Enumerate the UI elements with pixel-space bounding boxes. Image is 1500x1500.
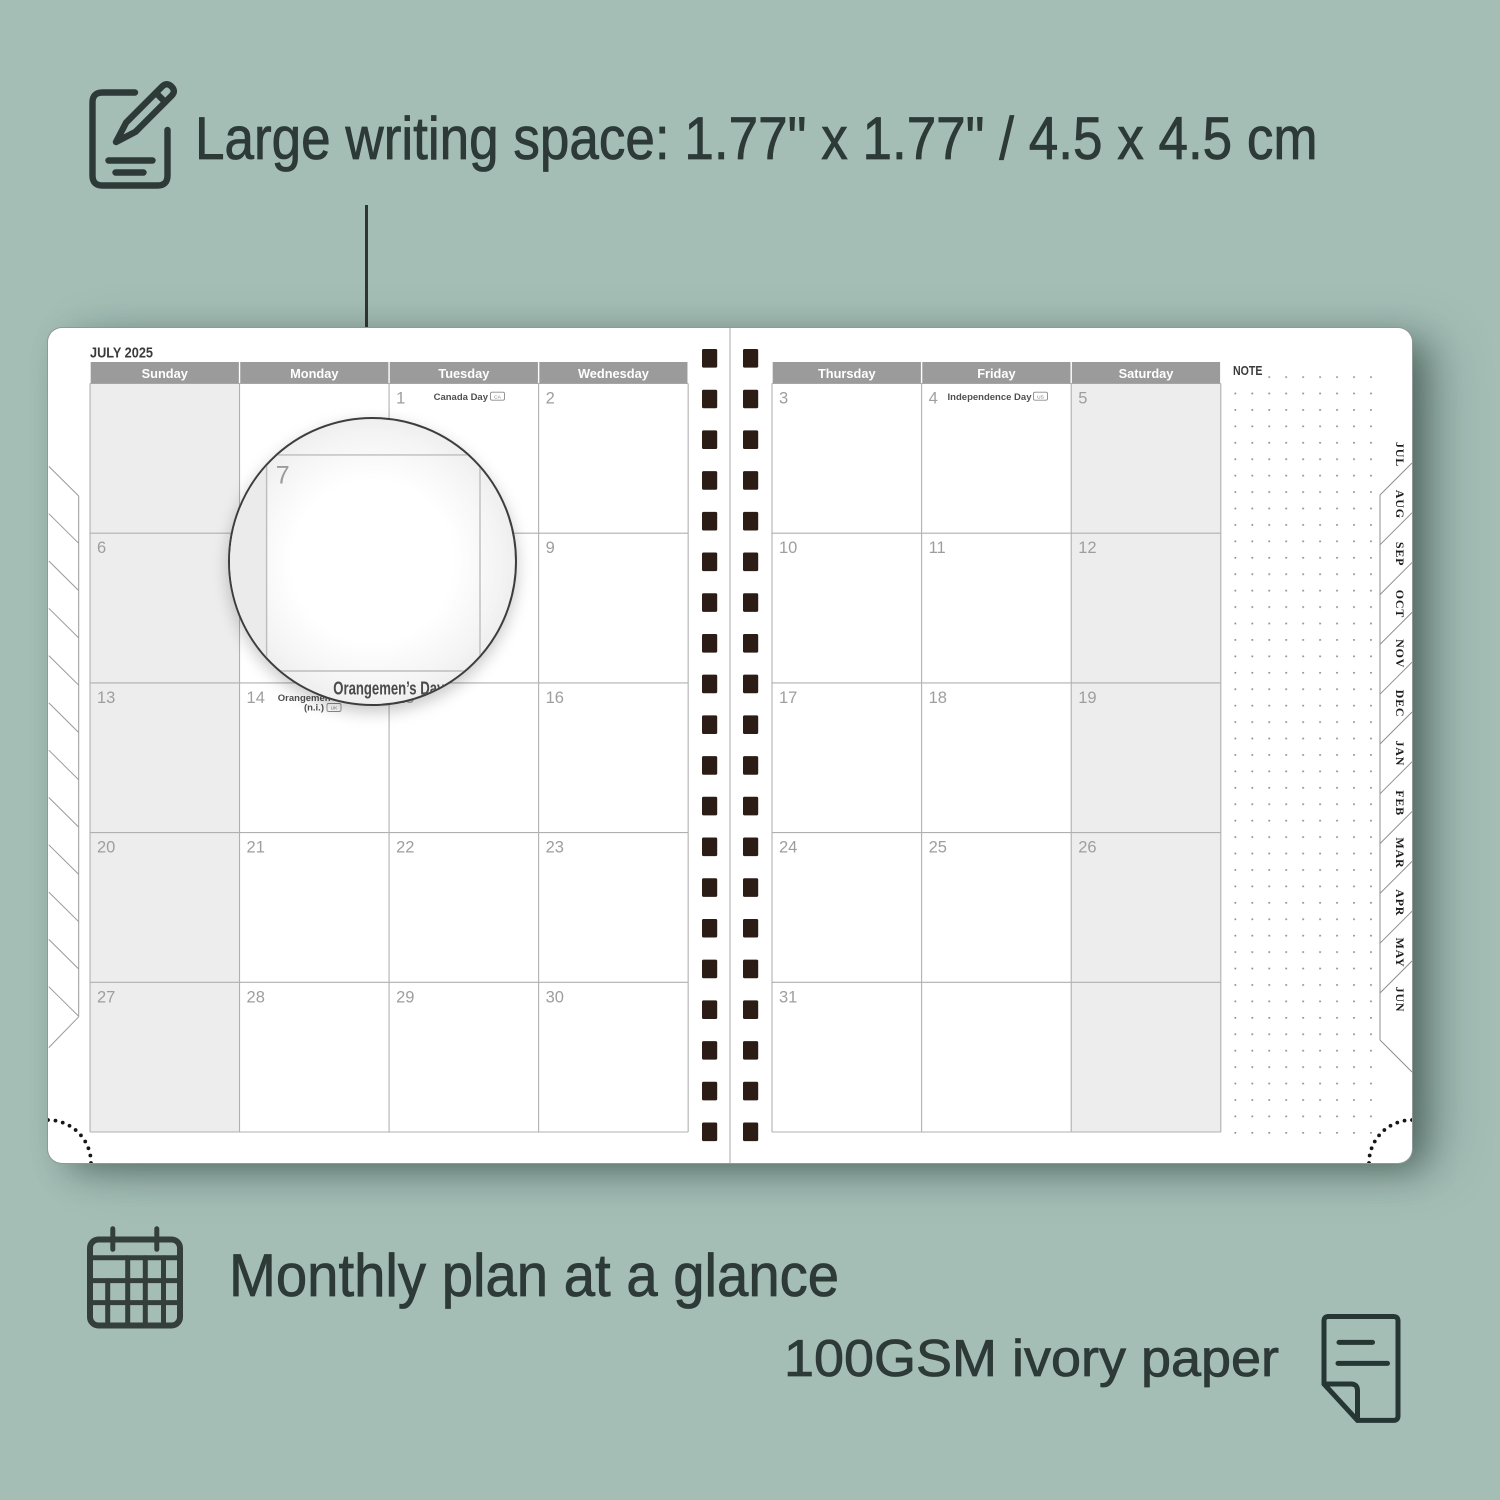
svg-text:30: 30	[546, 988, 564, 1006]
svg-text:Thursday: Thursday	[818, 366, 876, 381]
svg-text:SEP: SEP	[1393, 542, 1407, 566]
svg-text:26: 26	[1078, 839, 1096, 857]
svg-text:4: 4	[929, 390, 938, 408]
svg-text:13: 13	[97, 689, 115, 707]
svg-text:21: 21	[247, 839, 265, 857]
svg-text:Wednesday: Wednesday	[578, 366, 650, 381]
svg-text:JULY 2025: JULY 2025	[90, 346, 153, 362]
svg-text:Independence Day: Independence Day	[948, 392, 1033, 403]
svg-text:DEC: DEC	[1393, 690, 1407, 718]
svg-text:24: 24	[779, 839, 797, 857]
svg-text:Monday: Monday	[290, 366, 339, 381]
svg-text:6: 6	[97, 539, 106, 557]
svg-text:27: 27	[97, 988, 115, 1006]
svg-text:Tuesday: Tuesday	[438, 366, 490, 381]
svg-text:APR: APR	[1393, 889, 1407, 916]
svg-text:(n.i.): (n.i.)	[304, 703, 324, 714]
svg-text:16: 16	[546, 689, 564, 707]
svg-text:CA: CA	[494, 394, 501, 400]
svg-text:3: 3	[779, 390, 788, 408]
svg-text:18: 18	[929, 689, 947, 707]
svg-text:10: 10	[779, 539, 797, 557]
svg-text:Sunday: Sunday	[142, 366, 189, 381]
svg-text:7: 7	[276, 461, 290, 489]
svg-text:9: 9	[546, 539, 555, 557]
svg-text:1: 1	[396, 390, 405, 408]
svg-text:5: 5	[1078, 390, 1087, 408]
svg-text:NOTE: NOTE	[1233, 364, 1263, 378]
svg-text:12: 12	[1078, 539, 1096, 557]
svg-text:23: 23	[546, 839, 564, 857]
svg-text:20: 20	[97, 839, 115, 857]
svg-text:2: 2	[546, 390, 555, 408]
svg-text:22: 22	[396, 839, 414, 857]
svg-text:NOV: NOV	[1393, 639, 1407, 668]
svg-text:29: 29	[396, 988, 414, 1006]
svg-text:17: 17	[779, 689, 797, 707]
svg-text:MAR: MAR	[1393, 837, 1407, 868]
svg-text:MAY: MAY	[1393, 938, 1407, 968]
svg-text:14: 14	[247, 689, 265, 707]
svg-text:Canada Day: Canada Day	[434, 392, 489, 403]
svg-text:25: 25	[929, 839, 947, 857]
svg-text:31: 31	[779, 988, 797, 1006]
svg-text:JUN: JUN	[1393, 987, 1407, 1013]
svg-text:JUL: JUL	[1393, 442, 1407, 467]
svg-text:FEB: FEB	[1393, 790, 1407, 816]
svg-text:Saturday: Saturday	[1119, 366, 1175, 381]
svg-text:AUG: AUG	[1393, 490, 1407, 519]
svg-text:Orangemen’s Day: Orangemen’s Day	[333, 678, 444, 698]
svg-text:JAN: JAN	[1393, 740, 1407, 766]
svg-text:Friday: Friday	[977, 366, 1016, 381]
svg-text:28: 28	[247, 988, 265, 1006]
svg-text:US: US	[1037, 394, 1044, 400]
svg-text:OCT: OCT	[1393, 590, 1407, 618]
svg-text:19: 19	[1078, 689, 1096, 707]
svg-text:UK: UK	[331, 706, 338, 712]
svg-text:11: 11	[929, 539, 946, 557]
